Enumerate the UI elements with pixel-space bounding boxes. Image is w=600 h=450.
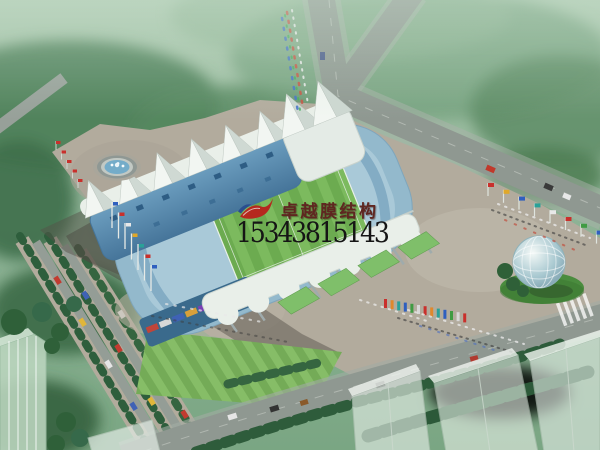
fountain [93,153,141,181]
aerial-scene [0,0,600,450]
architectural-rendering: 卓越膜结构 15343815143 [0,0,600,450]
haze-overlay [0,0,600,120]
